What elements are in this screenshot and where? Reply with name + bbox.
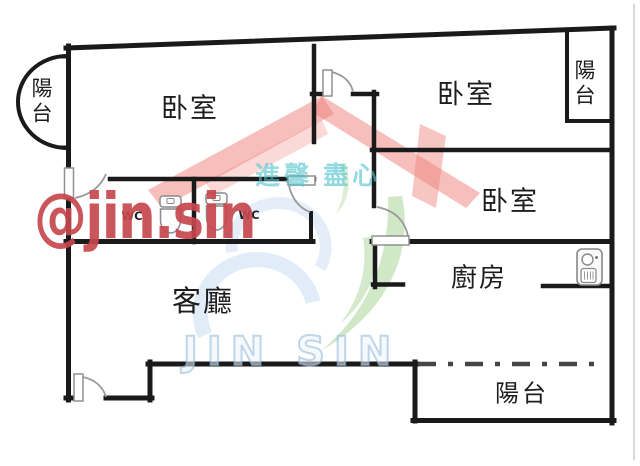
room-label-bedroom-2: 卧室: [437, 73, 495, 112]
water-heater-icon: [577, 249, 602, 285]
bedroom2-door-leaf: [323, 70, 332, 96]
room-label-balcony-top-right: 陽台: [569, 59, 599, 109]
water-heater-vent: [581, 269, 596, 283]
entrance-door-arc: [83, 377, 106, 397]
room-label-balcony-left: 陽台: [26, 77, 56, 127]
room-label-living-room: 客廳: [172, 278, 234, 320]
photo-edge-streak: [633, 4, 635, 460]
instagram-handle-watermark: @jin.sin: [34, 180, 255, 253]
room-label-balcony-bottom: 陽台: [495, 374, 549, 409]
brand-cjk-watermark: 進馨 盡心: [255, 156, 381, 192]
room-label-bedroom-1: 卧室: [161, 87, 219, 126]
water-heater-dial: [582, 254, 593, 265]
room-label-bedroom-3: 卧室: [481, 180, 539, 219]
room-label-kitchen: 廚房: [451, 258, 507, 295]
entrance-door-leaf: [74, 374, 83, 401]
bedroom2-door-arc: [332, 72, 353, 92]
bedroom3-door-leaf: [372, 236, 409, 245]
wall-top: [66, 28, 614, 48]
roof-chimney-bar: [412, 124, 446, 208]
brand-latin-watermark: JIN SIN: [183, 329, 400, 375]
floor-plan: 卧室 卧室 卧室 廚房 客廳 陽台 陽台 陽台 WC WC 進馨 盡心 @jin…: [0, 0, 640, 466]
water-heater-knob: [595, 256, 598, 259]
